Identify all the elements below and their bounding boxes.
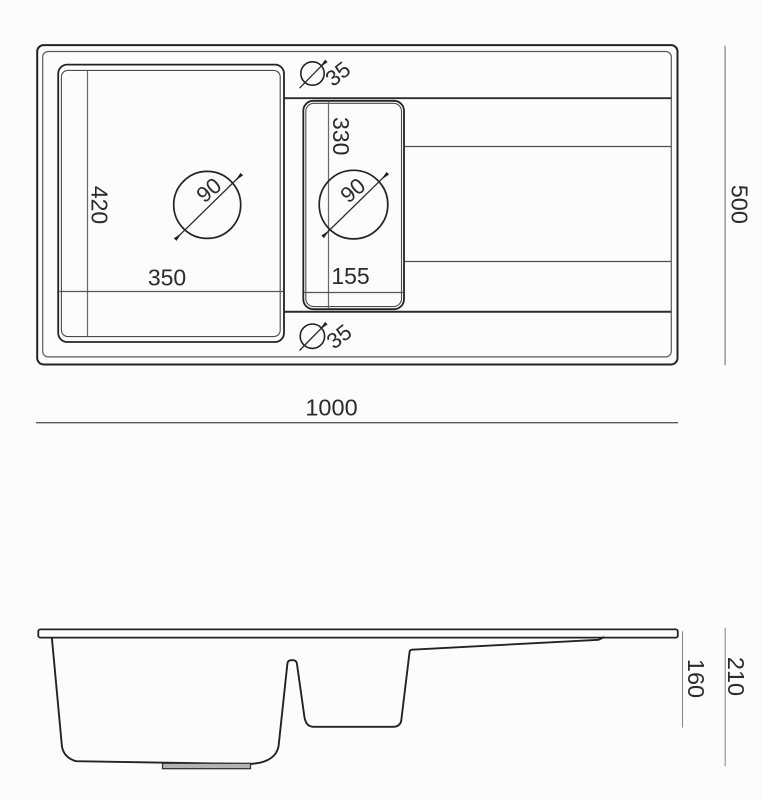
- svg-text:500: 500: [727, 185, 753, 224]
- svg-text:420: 420: [87, 186, 113, 224]
- svg-text:90: 90: [335, 173, 370, 208]
- svg-text:90: 90: [191, 173, 226, 208]
- svg-text:350: 350: [148, 265, 186, 291]
- svg-text:160: 160: [683, 659, 709, 698]
- svg-text:155: 155: [331, 263, 369, 289]
- svg-text:210: 210: [723, 657, 749, 696]
- svg-text:35: 35: [322, 319, 357, 354]
- svg-text:1000: 1000: [305, 395, 357, 421]
- svg-text:330: 330: [328, 117, 354, 155]
